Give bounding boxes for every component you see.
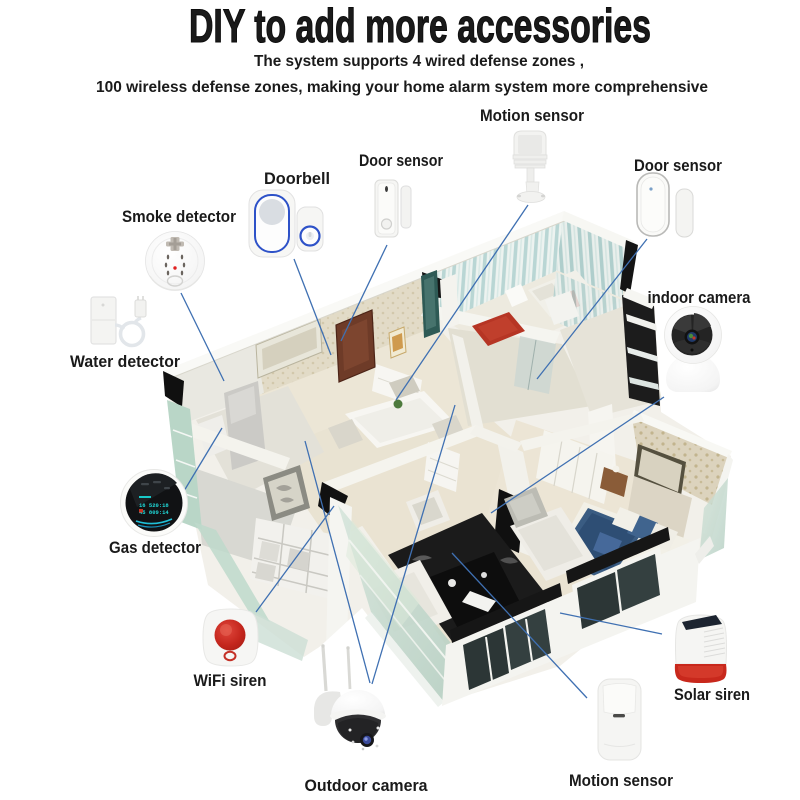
svg-text:Water detector: Water detector xyxy=(70,352,180,371)
svg-text:Gas detector: Gas detector xyxy=(109,538,201,557)
svg-text:WiFi siren: WiFi siren xyxy=(194,671,267,690)
svg-text:Solar siren: Solar siren xyxy=(674,685,750,704)
svg-text:Door sensor: Door sensor xyxy=(634,156,722,175)
svg-text:45 809:14: 45 809:14 xyxy=(139,509,169,516)
svg-text:Outdoor camera: Outdoor camera xyxy=(305,776,429,795)
svg-text:Motion sensor: Motion sensor xyxy=(480,106,584,125)
svg-text:Door sensor: Door sensor xyxy=(359,151,443,170)
svg-text:Smoke detector: Smoke detector xyxy=(122,207,236,226)
svg-text:DIY to add more accessories: DIY to add more accessories xyxy=(189,0,651,52)
svg-text:The system supports 4 wired de: The system supports 4 wired defense zone… xyxy=(254,53,584,70)
svg-text:16 520:18: 16 520:18 xyxy=(139,502,169,509)
svg-text:100 wireless defense zones, ma: 100 wireless defense zones, making your … xyxy=(96,79,708,96)
svg-text:Motion sensor: Motion sensor xyxy=(569,771,673,790)
svg-text:Doorbell: Doorbell xyxy=(264,169,330,188)
svg-text:indoor camera: indoor camera xyxy=(648,288,751,307)
